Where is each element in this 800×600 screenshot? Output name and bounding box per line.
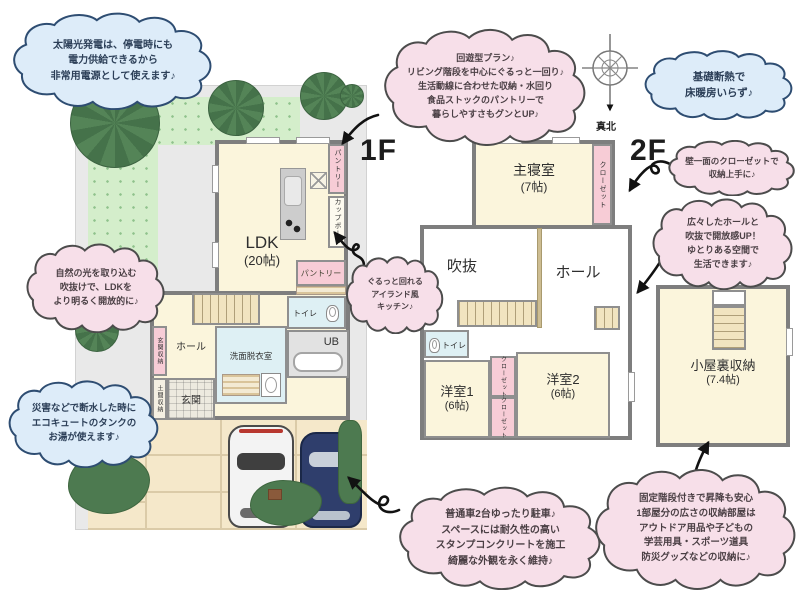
window (246, 137, 280, 144)
pantry-shelf (296, 286, 346, 295)
bubble-line: スペースには耐久性の高い (436, 523, 566, 539)
washing-machine-icon (261, 373, 281, 397)
bubble-line: 回遊型プラン♪ (407, 52, 564, 66)
room-attic: 小屋裏収納 (7.4帖) (664, 358, 782, 388)
void-half-wall (537, 228, 542, 328)
bubble-hall-void: 広々したホールと 吹抜で開放感UP！ ゆとりある空間で 生活できます♪ (652, 198, 794, 290)
room-bath: UB (287, 330, 349, 378)
bubble-line: 生活できます♪ (685, 258, 761, 272)
bubble-line: 基礎断熱で (685, 69, 753, 85)
closet-west2-label: クローゼット (499, 397, 508, 439)
window (296, 137, 330, 144)
car-white-windshield (237, 453, 284, 470)
bubble-line: キッチン♪ (367, 301, 423, 313)
bubble-ecocute-text: 災害などで断水した時に エコキュートのタンクの お湯が使えます♪ (32, 402, 137, 446)
bubble-line: 広々したホールと (685, 216, 761, 230)
bubble-island-kitchen-text: ぐるっと回れる アイランド風 キッチン♪ (367, 276, 423, 313)
compass-label: 真北 (596, 118, 616, 133)
planter (268, 489, 282, 500)
entrance-storage-label: 玄関収納 (155, 337, 164, 365)
attic-size: (7.4帖) (664, 374, 782, 388)
bubble-line: アイランド風 (367, 289, 423, 301)
hall-2f-label: ホール (555, 264, 600, 281)
pantry-room-label: パントリー (301, 268, 341, 279)
west2-name: 洋室2 (534, 372, 592, 388)
closet-master: クローゼット (592, 144, 612, 225)
bubble-line: エコキュートのタンクの (32, 417, 137, 432)
bubble-parking: 普通車2台ゆったり駐車♪ スペースには耐久性の高い スタンプコンクリートを施工 … (398, 486, 603, 590)
room-washroom: 洗面脱衣室 (215, 326, 287, 404)
bubble-circulation-text: 回遊型プラン♪ リビング階段を中心にぐるっと一回り♪ 生活動線に合わせた収納・水… (407, 52, 564, 122)
car-white-front (239, 429, 284, 433)
bubble-solar: 太陽光発電は、停電時にも 電力供給できるから 非常用電源として使えます♪ (12, 12, 214, 110)
bubble-line: 食品ストックのパントリーで (407, 94, 564, 108)
bubble-line: ゆとりある空間で (685, 244, 761, 258)
bubble-natural-light-text: 自然の光を取り込む 吹抜けで、LDKを より明るく開放的に♪ (53, 267, 138, 309)
kitchen-island (280, 168, 306, 240)
bubble-line: 自然の光を取り込む (53, 267, 138, 281)
tree-medium (208, 80, 264, 136)
bubble-solar-text: 太陽光発電は、停電時にも 電力供給できるから 非常用電源として使えます♪ (51, 38, 176, 85)
bubble-line: 暮らしやすさもグンとUP♪ (407, 108, 564, 122)
floorplan-page: LDK (20帖) パントリー カップボード パントリー トイレ UB 洗面脱衣… (0, 0, 800, 600)
bubble-line: 壁一面のクローゼットで (685, 155, 779, 168)
bubble-line: スタンプコンクリートを施工 (436, 538, 566, 554)
bubble-ecocute: 災害などで断水した時に エコキュートのタンクの お湯が使えます♪ (8, 380, 160, 468)
bubble-line: 吹抜けで、LDKを (53, 281, 138, 295)
bubble-line: 防災グッズなどの収納に♪ (636, 551, 755, 566)
room-toilet-1f: トイレ (287, 296, 346, 329)
bubble-line: 1部屋分の広さの収納部屋は (636, 507, 755, 522)
bubble-line: 非常用電源として使えます♪ (51, 69, 176, 85)
pantry-strip: パントリー (328, 144, 346, 194)
entrance-storage: 玄関収納 (152, 326, 167, 376)
master-name: 主寝室 (496, 162, 572, 180)
void-label: 吹抜 (447, 258, 477, 275)
kitchen-sink (284, 176, 302, 206)
bubble-attic-text: 固定階段付きで昇降も安心 1部屋分の広さの収納部屋は アウトドア用品や子どもの … (636, 492, 755, 566)
closet-west2: クローゼット (490, 397, 516, 438)
tree-tiny (340, 84, 364, 108)
washroom-label: 洗面脱衣室 (230, 350, 273, 362)
window (212, 165, 219, 193)
bubble-line: より明るく開放的に♪ (53, 295, 138, 309)
bubble-line: 太陽光発電は、停電時にも (51, 38, 176, 54)
refrigerator (310, 172, 327, 189)
kitchen-stove (285, 219, 301, 233)
arrow-circulation (338, 112, 380, 148)
west2-label: 洋室2 (6帖) (534, 372, 592, 402)
bathtub-icon (293, 352, 343, 372)
closet-west1-label: クローゼット (499, 356, 508, 398)
room-hall-1f: ホール (168, 342, 214, 355)
arrow-closet-wall (626, 156, 672, 198)
bath-label: UB (324, 336, 339, 348)
room-toilet-2f: トイレ (424, 330, 469, 358)
closet-west1: クローゼット (490, 356, 516, 397)
arrow-parking (344, 468, 402, 516)
bubble-line: 床暖房いらず♪ (685, 85, 753, 101)
stairs-1f (192, 293, 260, 325)
window (786, 328, 793, 356)
washroom-counter (222, 374, 260, 396)
bubble-line: 学芸用具・スポーツ道具 (636, 536, 755, 551)
bubble-circulation: 回遊型プラン♪ リビング階段を中心にぐるっと一回り♪ 生活動線に合わせた収納・水… (383, 28, 588, 146)
bubble-line: リビング階段を中心にぐるっと一回り♪ (407, 66, 564, 80)
toilet-icon-2f (429, 338, 440, 353)
toilet-1f-label: トイレ (293, 308, 317, 319)
bubble-line: 災害などで断水した時に (32, 402, 137, 417)
west1-label: 洋室1 (6帖) (430, 384, 484, 414)
room-entrance: 玄関 (167, 378, 215, 420)
bubble-closet-wall: 壁一面のクローゼットで 収納上手に♪ (668, 140, 796, 196)
bubble-natural-light: 自然の光を取り込む 吹抜けで、LDKを より明るく開放的に♪ (26, 243, 166, 333)
closet-master-label: クローゼット (597, 161, 607, 209)
bubble-insulation: 基礎断熱で 床暖房いらず♪ (644, 50, 794, 120)
master-size: (7帖) (496, 180, 572, 195)
bubble-parking-text: 普通車2台ゆったり駐車♪ スペースには耐久性の高い スタンプコンクリートを施工 … (436, 507, 566, 569)
west1-size: (6帖) (430, 400, 484, 414)
attic-name: 小屋裏収納 (664, 358, 782, 374)
toilet-icon-1f (326, 305, 339, 322)
stairs-to-attic (594, 306, 620, 330)
bubble-island-kitchen: ぐるっと回れる アイランド風 キッチン♪ (346, 256, 444, 334)
stairs-2f (457, 300, 537, 327)
room-hall-2f: ホール (545, 264, 611, 283)
bubble-line: 普通車2台ゆったり駐車♪ (436, 507, 566, 523)
bubble-line: 吹抜で開放感UP！ (685, 230, 761, 244)
window (628, 372, 635, 402)
bubble-closet-wall-text: 壁一面のクローゼットで 収納上手に♪ (685, 155, 779, 181)
bubble-hall-void-text: 広々したホールと 吹抜で開放感UP！ ゆとりある空間で 生活できます♪ (685, 216, 761, 272)
bubble-attic: 固定階段付きで昇降も安心 1部屋分の広さの収納部屋は アウトドア用品や子どもの … (594, 468, 798, 590)
toilet-2f-label: トイレ (442, 340, 466, 351)
attic-stairs (712, 306, 746, 350)
bubble-line: 電力供給できるから (51, 53, 176, 69)
bubble-line: アウトドア用品や子どもの (636, 522, 755, 537)
entrance-label: 玄関 (181, 392, 201, 407)
bubble-line: 綺麗な外観を永く維持♪ (436, 554, 566, 570)
west2-size: (6帖) (534, 388, 592, 402)
bubble-line: お湯が使えます♪ (32, 431, 137, 446)
bubble-line: 生活動線に合わせた収納・水回り (407, 80, 564, 94)
bubble-line: 固定階段付きで昇降も安心 (636, 492, 755, 507)
bubble-insulation-text: 基礎断熱で 床暖房いらず♪ (685, 69, 753, 102)
bubble-line: 収納上手に♪ (685, 168, 779, 181)
room-ldk-size: (20帖) (222, 253, 302, 269)
pantry-strip-label: パントリー (332, 149, 342, 189)
compass-text: 真北 (596, 122, 616, 133)
bubble-line: ぐるっと回れる (367, 276, 423, 288)
hall-1f-label: ホール (176, 342, 206, 353)
master-bedroom-label: 主寝室 (7帖) (496, 162, 572, 195)
window (212, 242, 219, 268)
west1-name: 洋室1 (430, 384, 484, 400)
attic-stair-landing (712, 290, 746, 306)
